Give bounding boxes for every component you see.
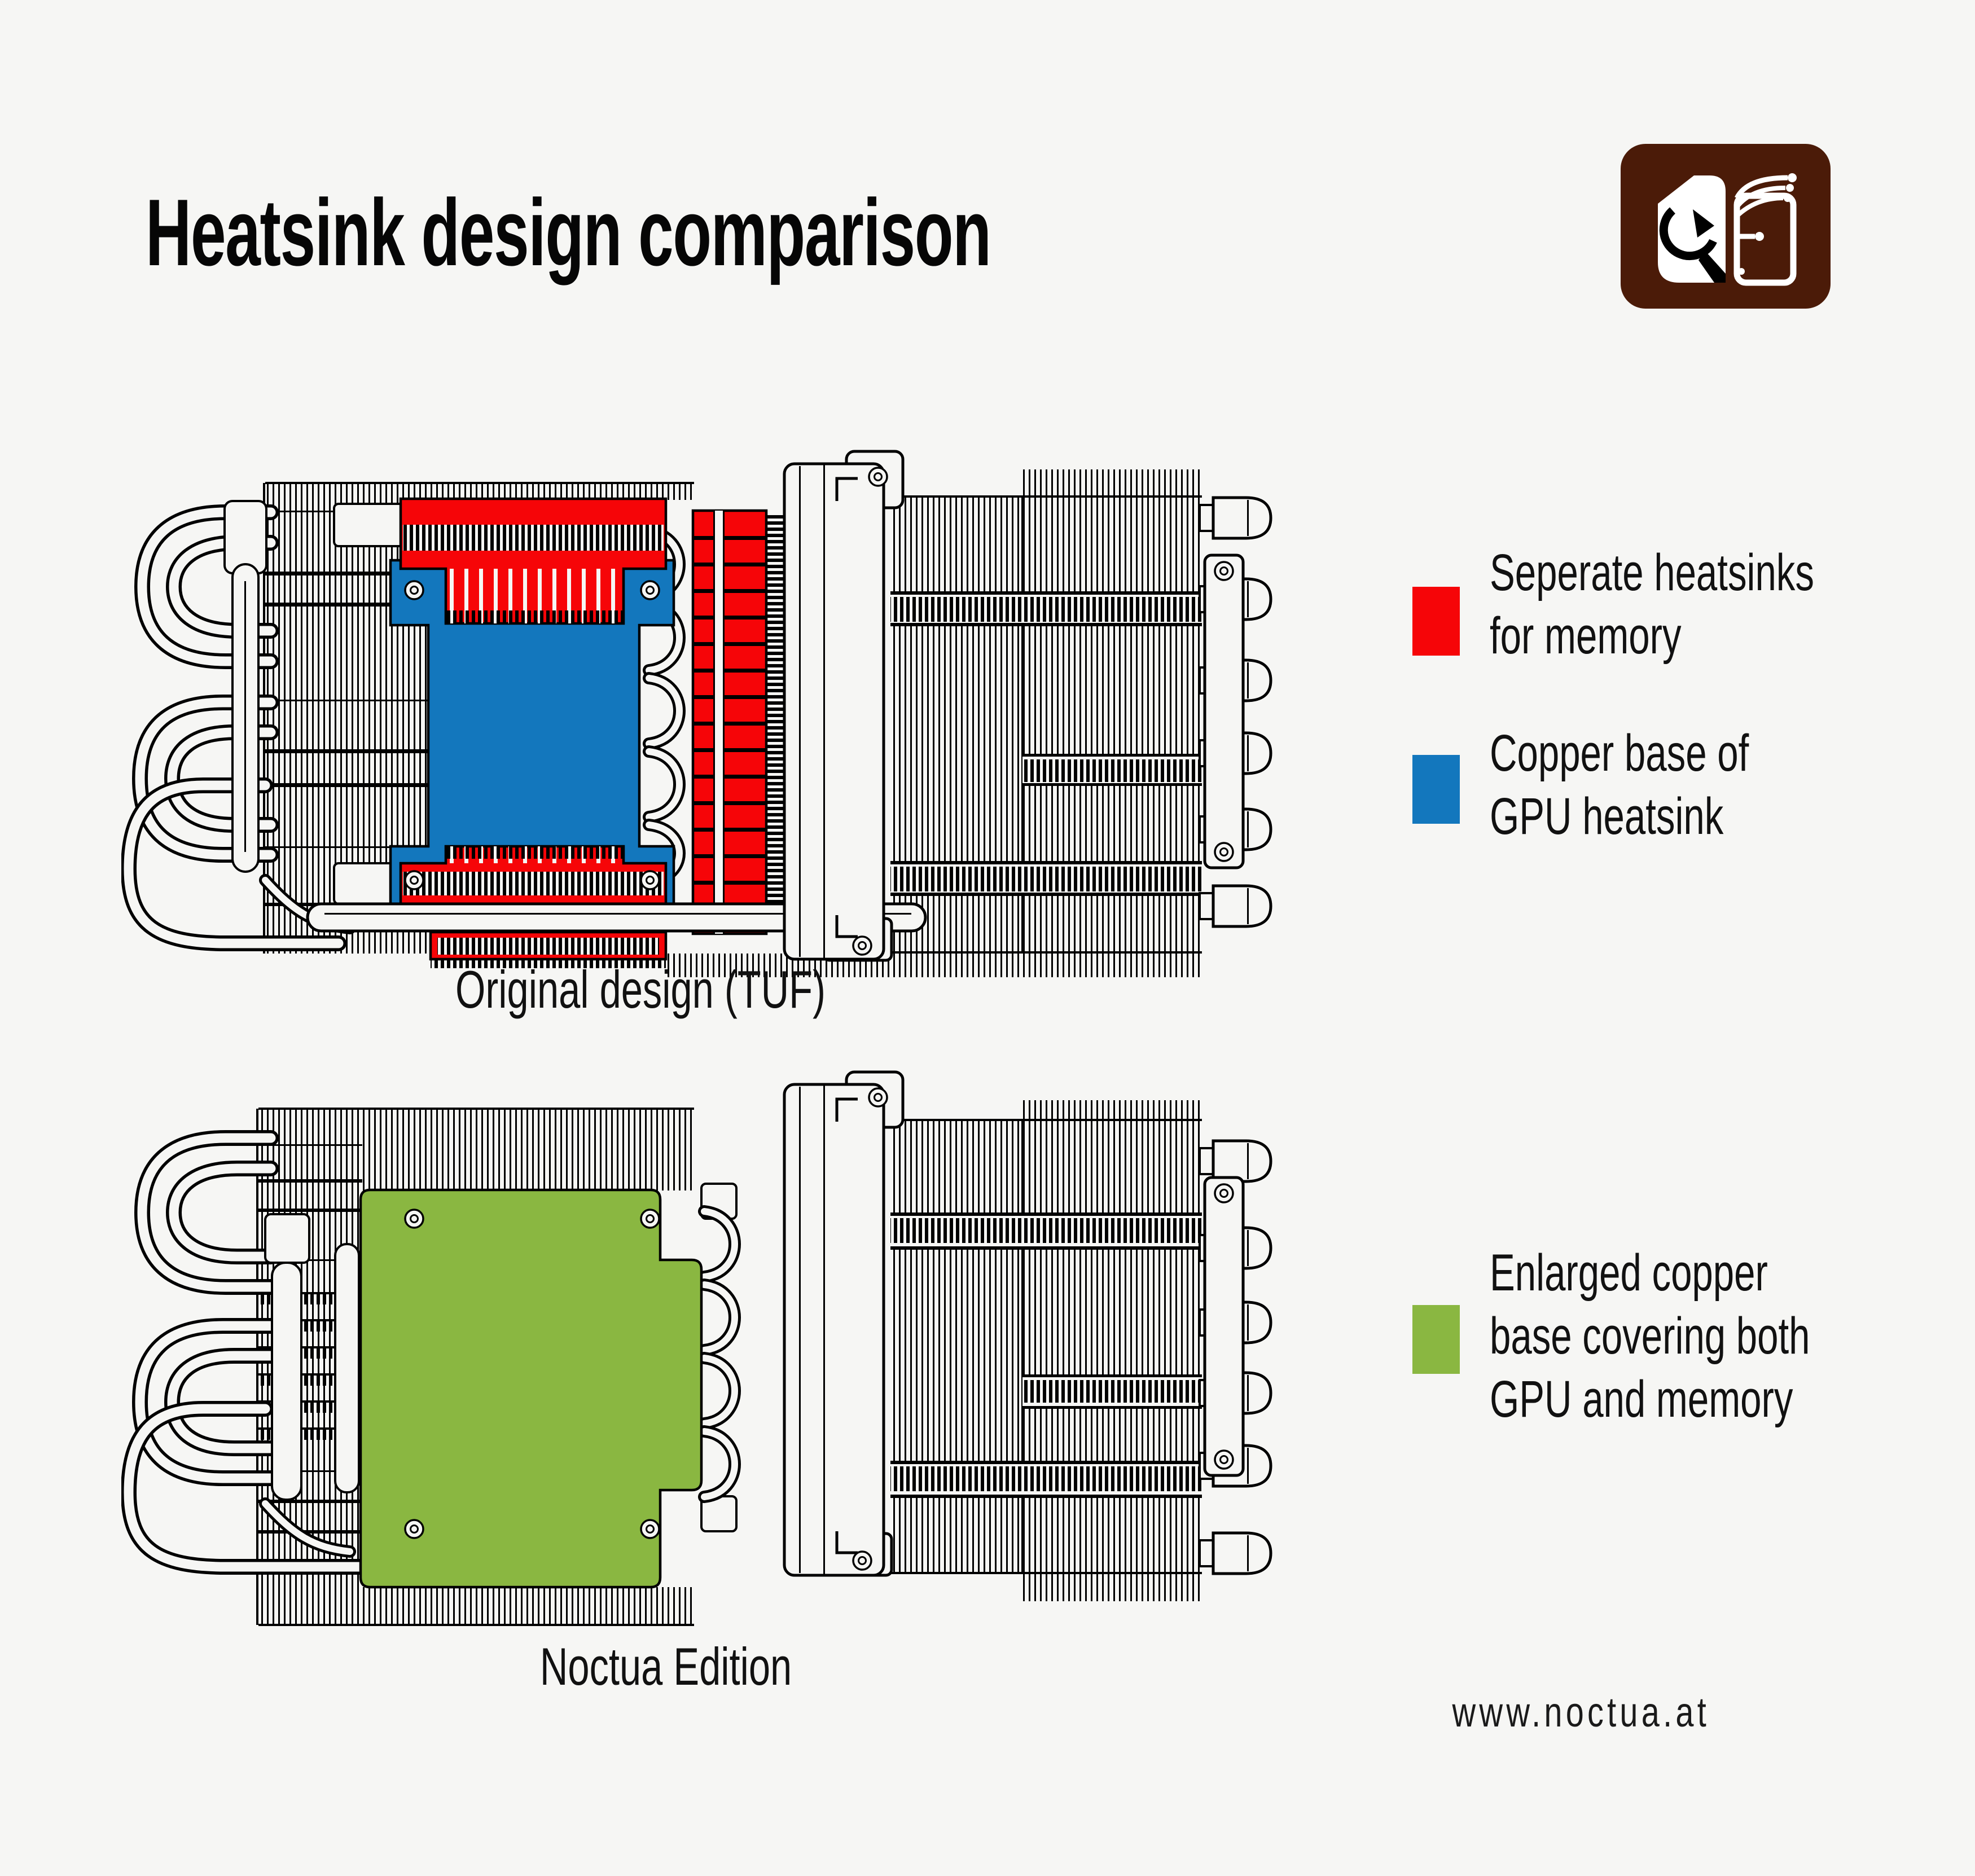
memory-heatsink-column bbox=[693, 511, 783, 934]
legend-label-enlarged-base: Enlarged copper base covering both GPU a… bbox=[1490, 1241, 1810, 1431]
caption-noctua-edition: Noctua Edition bbox=[481, 1636, 852, 1697]
caption-original-tuf: Original design (TUF) bbox=[455, 959, 826, 1020]
mounting-bracket bbox=[784, 1072, 903, 1575]
io-bracket bbox=[1205, 555, 1243, 868]
noctua-logo bbox=[1621, 144, 1831, 309]
diagram-original-tuf bbox=[121, 449, 1289, 979]
page-title: Heatsink design comparison bbox=[146, 178, 991, 287]
owl-icon bbox=[1621, 144, 1831, 309]
legend-label-gpu-base: Copper base of GPU heatsink bbox=[1490, 722, 1749, 848]
legend-swatch-gpu-base bbox=[1412, 755, 1460, 824]
infographic-canvas: Heatsink design comparison bbox=[0, 0, 1975, 1876]
diagram-noctua-edition bbox=[121, 1069, 1289, 1633]
heatpipe-bends bbox=[701, 1184, 736, 1531]
io-bracket bbox=[1205, 1178, 1243, 1475]
legend-swatch-memory bbox=[1412, 587, 1460, 656]
mounting-bracket bbox=[784, 451, 903, 960]
legend-label-memory: Seperate heatsinks for memory bbox=[1490, 541, 1814, 667]
legend-swatch-enlarged-base bbox=[1412, 1305, 1460, 1374]
website-url: www.noctua.at bbox=[1402, 1688, 1710, 1736]
